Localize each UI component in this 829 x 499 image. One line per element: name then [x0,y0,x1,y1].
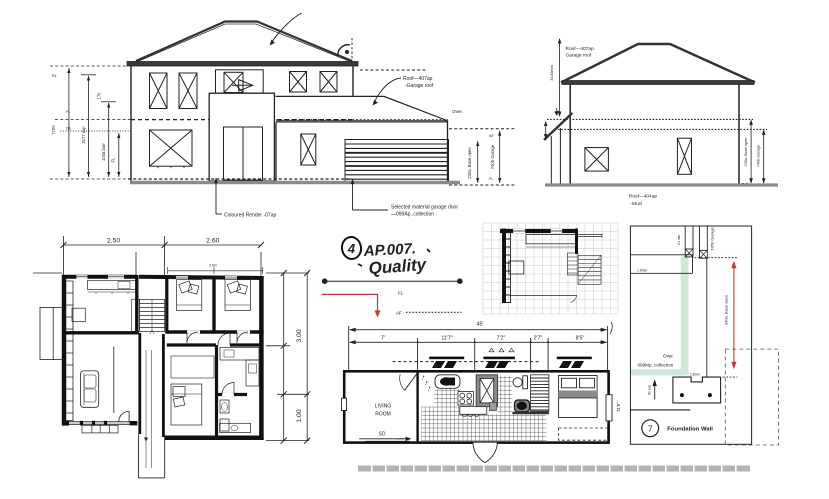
svg-text:330a..Base open: 330a..Base open [724,295,729,325]
svg-text:3177 exp: 3177 exp [81,126,86,144]
svg-text:11'5": 11'5" [616,402,621,412]
svg-text:11'7": 11'7" [441,336,452,342]
svg-text:8'5": 8'5" [576,336,585,342]
svg-text:2'7": 2'7" [534,336,543,342]
svg-text:LIVING: LIVING [375,404,392,410]
svg-text:100a barr: 100a barr [101,142,106,161]
svg-text:7: 7 [648,424,653,434]
svg-text:FL: FL [66,110,70,114]
svg-text:DE: DE [66,127,72,131]
svg-text:740b Garage: 740b Garage [490,144,495,169]
svg-text:3140mm: 3140mm [549,65,554,81]
svg-text:2.60: 2.60 [206,238,219,245]
svg-text:1.5mm: 1.5mm [637,269,648,273]
svg-text:230a..Base open: 230a..Base open [467,146,472,178]
svg-text:4: 4 [347,241,356,256]
svg-text:7700: 7700 [51,125,56,135]
svg-text:AF: AF [396,310,402,315]
svg-text:7'2": 7'2" [497,336,506,342]
svg-text:-Garage roof: -Garage roof [405,83,434,89]
svg-text:230a..Base open: 230a..Base open [744,138,748,167]
svg-text:C1 mm: C1 mm [677,235,681,246]
svg-text:ROOM: ROOM [375,412,391,418]
svg-text:Roof—404ap: Roof—404ap [629,194,658,200]
svg-text:3.00: 3.00 [296,329,303,342]
svg-text:45': 45' [476,322,483,328]
svg-text:Roof—407ap: Roof—407ap [566,46,595,52]
svg-text:3.5m: 3.5m [209,264,217,268]
svg-text:Over.: Over. [663,354,674,359]
svg-text:—099Ap..collection: —099Ap..collection [391,212,434,218]
svg-text:SD: SD [379,432,386,438]
svg-text:Over.: Over. [452,109,463,114]
svg-text:745b Garage: 745b Garage [710,227,715,251]
svg-text:2.50: 2.50 [107,238,120,245]
svg-text:Selected material garage door: Selected material garage door [391,205,458,211]
svg-text:AF: AF [489,134,495,138]
svg-text:FL: FL [398,291,404,296]
svg-text:740b Garage: 740b Garage [757,145,761,167]
svg-text:-Stucl: -Stucl [630,201,642,207]
svg-text:1.5mm: 1.5mm [690,373,700,377]
svg-text:7': 7' [381,336,385,342]
svg-text:1.00: 1.00 [296,409,303,422]
svg-text:FL: FL [489,177,493,181]
svg-text:Foundation Wall: Foundation Wall [667,427,713,433]
svg-text:RL: RL [52,74,57,78]
svg-text:Coloured Render -07ap: Coloured Render -07ap [224,213,276,219]
svg-text:40 exp: 40 exp [648,385,652,395]
svg-text:170: 170 [97,92,102,100]
svg-text:099Mp..collection: 099Mp..collection [638,363,674,368]
svg-text:Garage roof: Garage roof [566,53,592,59]
svg-text:FL: FL [111,157,116,163]
svg-text:Roof—407ap: Roof—407ap [403,76,433,82]
